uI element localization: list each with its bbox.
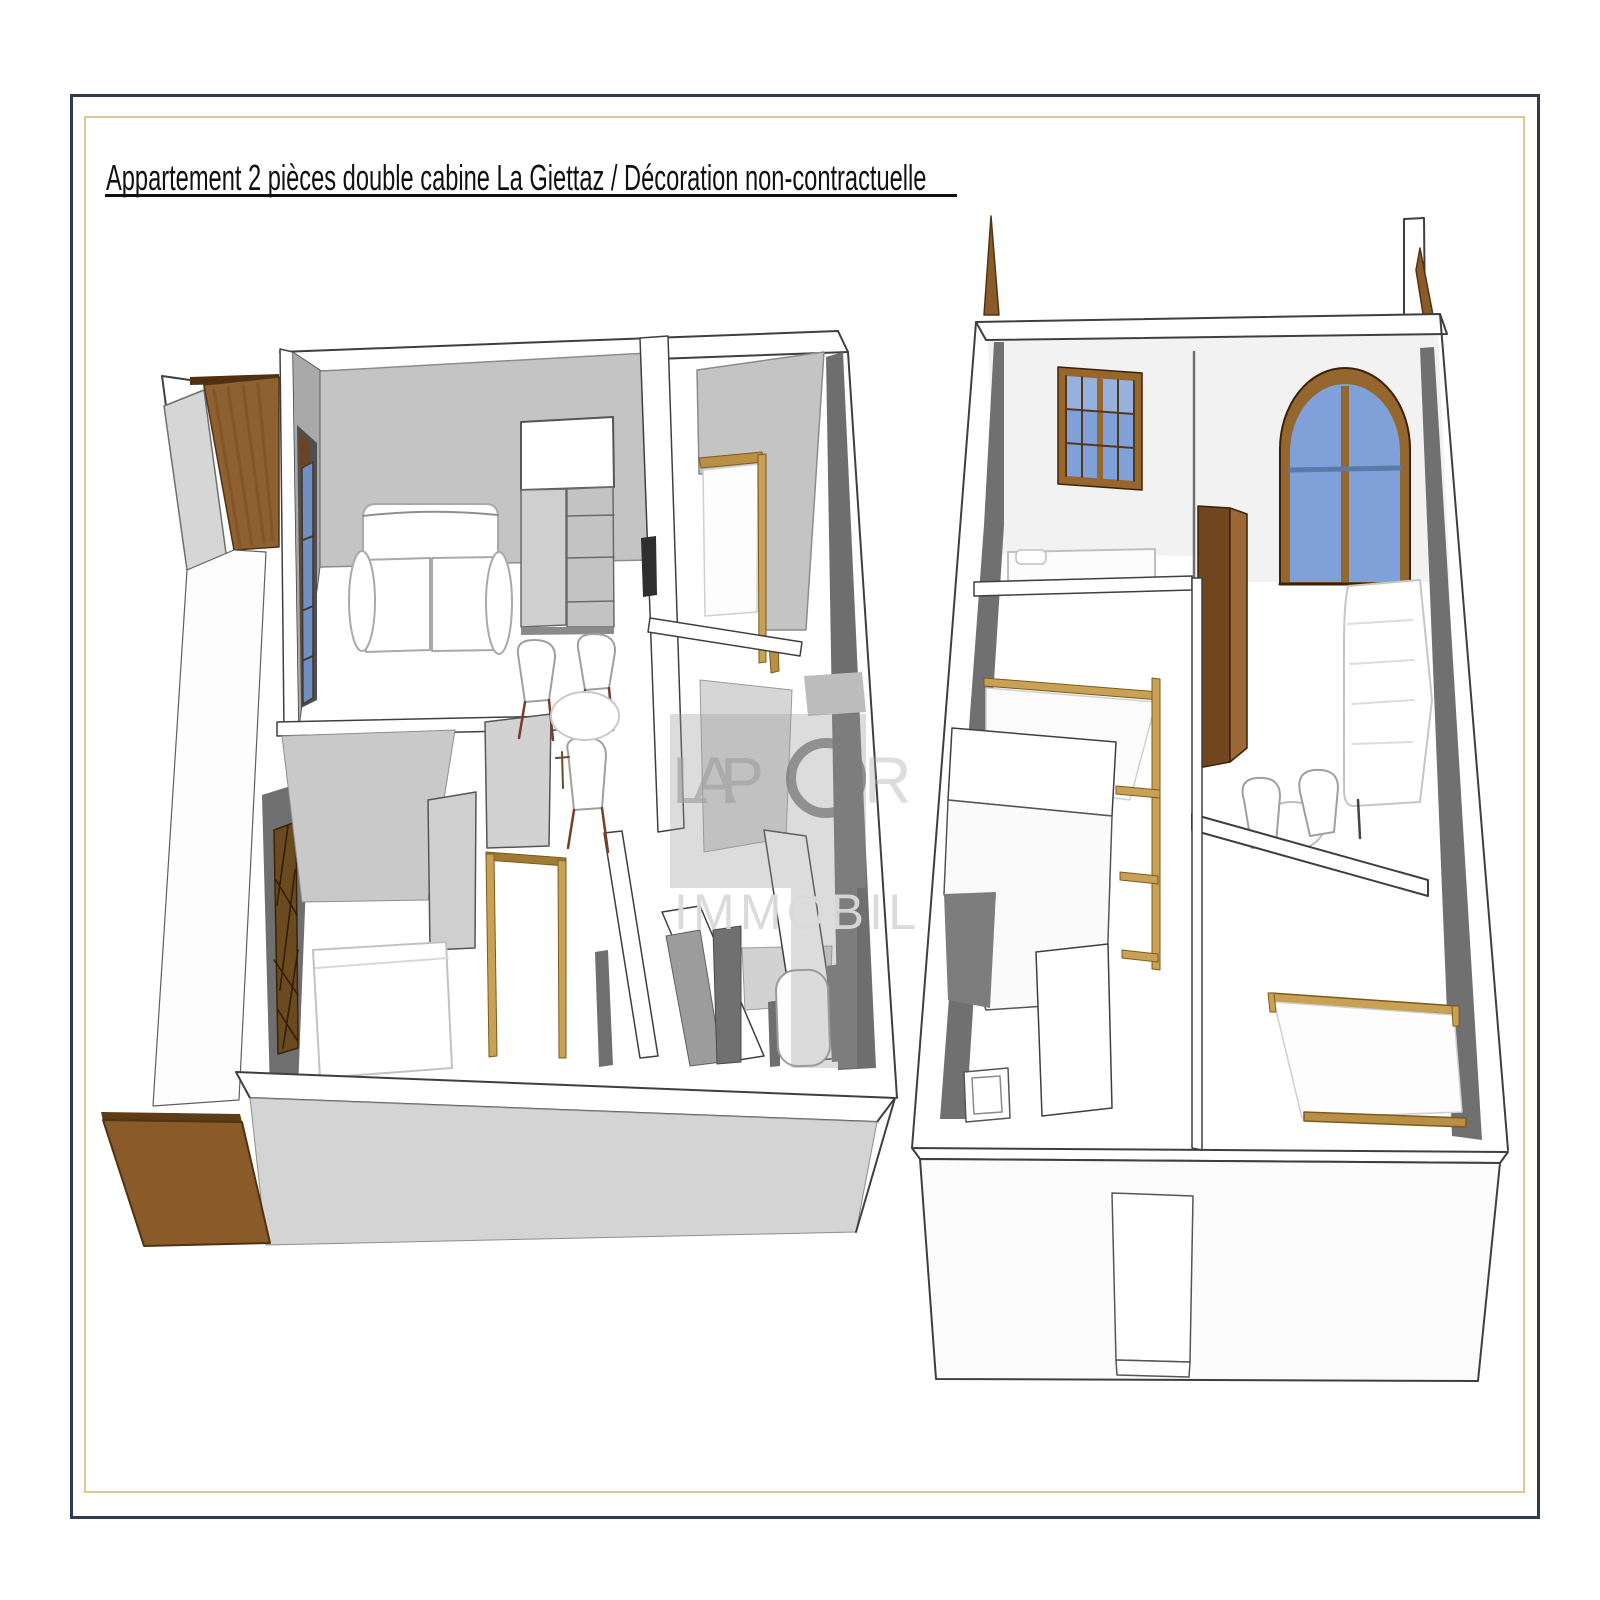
svg-text:LAP: LAP	[672, 743, 764, 817]
svg-text:IMMOBIL: IMMOBIL	[674, 884, 924, 940]
svg-text:R: R	[864, 743, 912, 817]
